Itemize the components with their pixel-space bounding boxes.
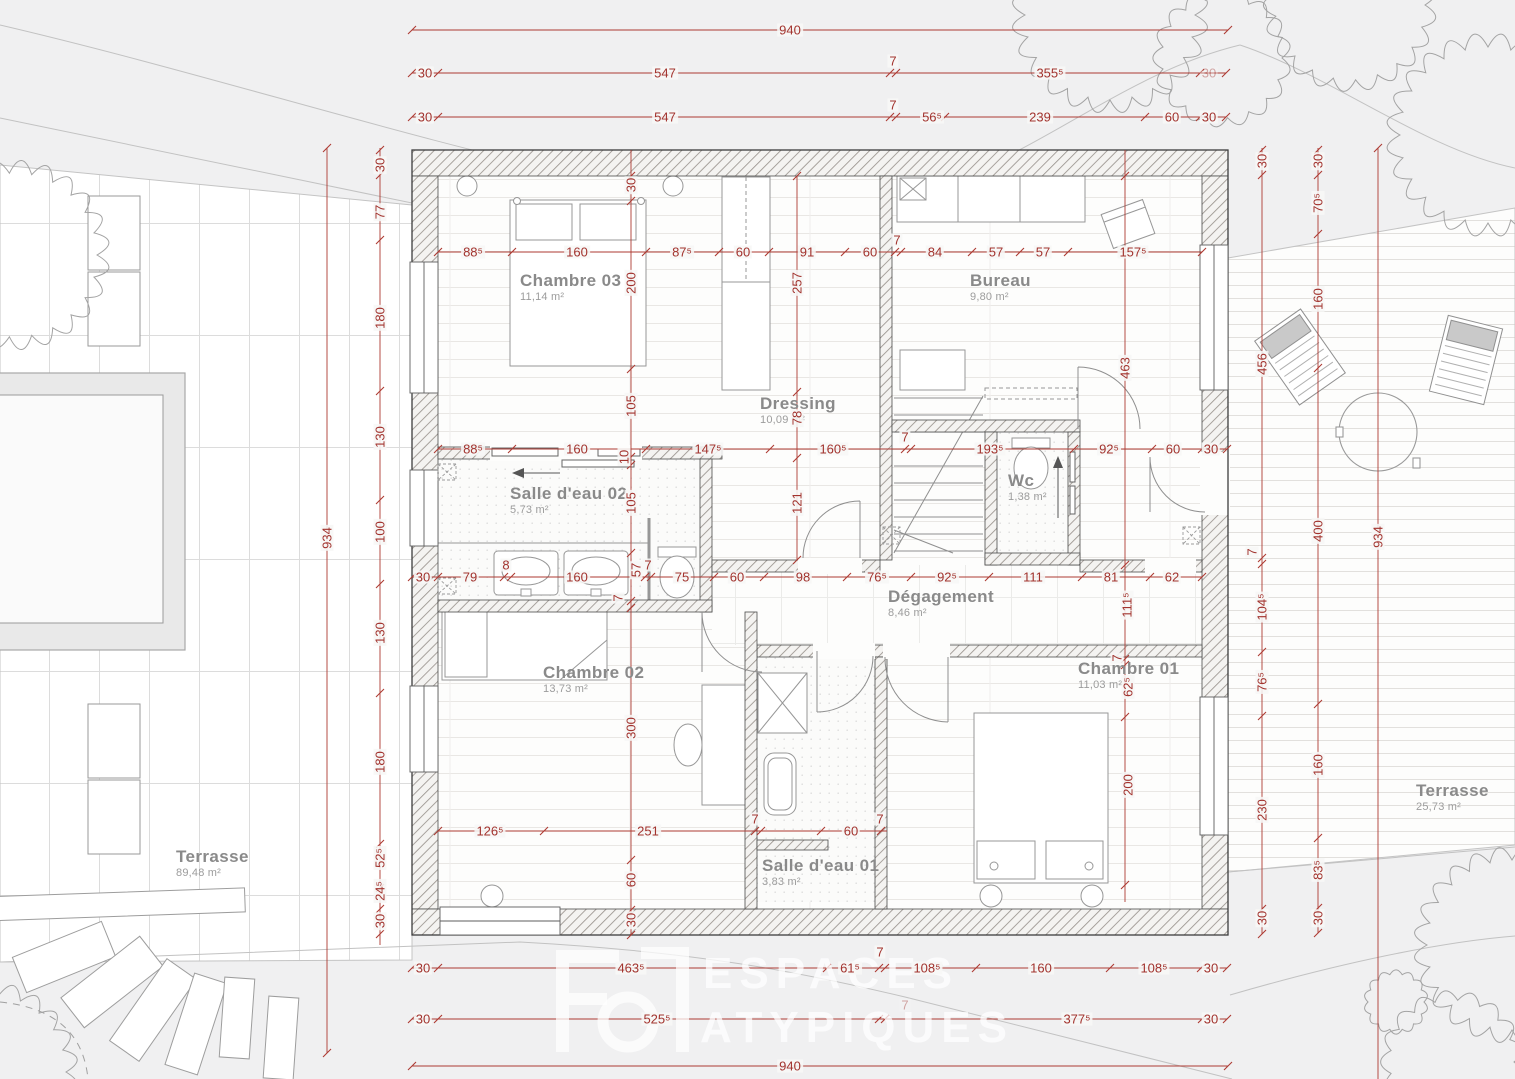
- bureau-closet: [897, 176, 1085, 222]
- left-terrace: [0, 165, 412, 962]
- room-area: 25,73 m²: [1416, 801, 1489, 813]
- dimension-label: 30: [625, 176, 638, 194]
- ceiling-light: [663, 176, 683, 196]
- dimension-label: 7: [874, 813, 885, 826]
- dimension-label: 88⁵: [461, 443, 485, 456]
- dimension-label: 91: [798, 246, 816, 259]
- dimension-label: 62⁵: [1122, 675, 1135, 699]
- room-area: 13,73 m²: [543, 683, 644, 695]
- dimension-label: 160: [1312, 286, 1325, 312]
- ceiling-light: [457, 176, 477, 196]
- dimension-label: 121: [791, 490, 804, 516]
- dimension-label: 193⁵: [974, 443, 1005, 456]
- dimension-label: 30: [374, 912, 387, 930]
- dimension-label: 81: [1102, 571, 1120, 584]
- dimension-label: 30: [416, 67, 434, 80]
- dimension-label: 57: [987, 246, 1005, 259]
- dimension-label: 104⁵: [1256, 591, 1269, 622]
- dimension-label: 70⁵: [1312, 191, 1325, 215]
- floor-plan-page: Chambre 03 11,14 m² Dressing 10,09 m² Bu…: [0, 0, 1515, 1079]
- dimension-label: 400: [1312, 518, 1325, 544]
- room-area: 5,73 m²: [510, 504, 627, 516]
- dimension-label: 98: [794, 571, 812, 584]
- dimension-label: 377⁵: [1061, 1013, 1092, 1026]
- dimension-label: 160: [1028, 962, 1054, 975]
- dimension-label: 7: [1111, 652, 1124, 663]
- dimension-label: 257: [791, 270, 804, 296]
- dimension-label: 525⁵: [641, 1013, 672, 1026]
- room-area: 8,46 m²: [888, 607, 994, 619]
- dimension-label: 160: [564, 246, 590, 259]
- dimension-label: 30: [1202, 1013, 1220, 1026]
- dimension-label: 57: [630, 561, 643, 579]
- sliding-door-wc: [1070, 452, 1075, 482]
- dimension-label: 30: [1312, 909, 1325, 927]
- desk-chambre-02: [702, 685, 750, 805]
- dimension-label: 463: [1119, 355, 1132, 381]
- pool: [0, 373, 185, 650]
- dimension-label: 76⁵: [865, 571, 889, 584]
- dimension-label: 79: [461, 571, 479, 584]
- dimension-label: 934: [321, 525, 334, 551]
- room-label-chambre-02: Chambre 02 13,73 m²: [543, 664, 644, 695]
- dimension-label: 56⁵: [920, 111, 944, 124]
- dimension-label: 30: [1200, 111, 1218, 124]
- bed-chambre-01: [974, 713, 1108, 907]
- dimension-label: 7: [612, 592, 625, 603]
- dimension-label: 84: [926, 246, 944, 259]
- dimension-label: 78: [791, 409, 804, 427]
- dimension-label: 547: [652, 67, 678, 80]
- dimension-label: 30: [1200, 67, 1218, 80]
- dimension-label: 88⁵: [461, 246, 485, 259]
- dimension-label: 60: [728, 571, 746, 584]
- dimension-label: 126⁵: [474, 825, 505, 838]
- dimension-label: 7: [887, 99, 898, 112]
- dimension-label: 87⁵: [670, 246, 694, 259]
- dimension-label: 30: [414, 571, 432, 584]
- room-label-chambre-03: Chambre 03 11,14 m²: [520, 272, 621, 303]
- dimension-label: 7: [891, 234, 902, 247]
- dimension-label: 24⁵: [374, 879, 387, 903]
- dimension-label: 8: [500, 559, 511, 572]
- dimension-label: 7: [749, 813, 760, 826]
- room-name: Chambre 03: [520, 272, 621, 291]
- sliding-door-wc: [1070, 486, 1075, 514]
- dimension-label: 105: [625, 490, 638, 516]
- dimension-label: 105: [625, 393, 638, 419]
- dimension-label: 111: [1021, 571, 1045, 584]
- dimension-label: 111⁵: [1121, 590, 1134, 619]
- dimension-label: 251: [635, 825, 661, 838]
- floor-plan-drawing: [0, 0, 1515, 1079]
- dimension-label: 30: [414, 1013, 432, 1026]
- dimension-label: 60: [734, 246, 752, 259]
- dimension-label: 30: [414, 962, 432, 975]
- dimension-label: 60: [842, 825, 860, 838]
- dimension-label: 30: [1312, 152, 1325, 170]
- dimension-label: 7: [642, 559, 653, 572]
- dimension-label: 130: [374, 424, 387, 450]
- chair-chambre-02: [674, 724, 702, 766]
- room-name: Chambre 02: [543, 664, 644, 683]
- room-label-wc: Wc 1,38 m²: [1008, 472, 1047, 503]
- dimension-label: 76⁵: [1256, 670, 1269, 694]
- dimension-label: 547: [652, 111, 678, 124]
- terrace-label-left: Terrasse 89,48 m²: [176, 848, 249, 879]
- dimension-label: 60: [1163, 111, 1181, 124]
- dimension-label: 30: [1202, 443, 1220, 456]
- dimension-label: 7: [887, 55, 898, 68]
- watermark-text-line2: ATYPIQUES: [700, 1006, 1014, 1050]
- dimension-label: 77: [374, 203, 387, 221]
- dimension-label: 160: [1312, 752, 1325, 778]
- dimension-label: 200: [625, 270, 638, 296]
- room-area: 11,14 m²: [520, 291, 621, 303]
- dimension-label: 230: [1256, 797, 1269, 823]
- room-name: Salle d'eau 01: [762, 857, 879, 876]
- dimension-label: 940: [777, 24, 803, 37]
- room-label-degagement: Dégagement 8,46 m²: [888, 588, 994, 619]
- dimension-label: 7: [899, 999, 910, 1012]
- dimension-label: 30: [416, 111, 434, 124]
- room-label-salle-d-eau-01: Salle d'eau 01 3,83 m²: [762, 857, 879, 888]
- dimension-label: 7: [874, 946, 885, 959]
- room-area: 1,38 m²: [1008, 491, 1047, 503]
- dimension-label: 83⁵: [1312, 858, 1325, 882]
- dimension-label: 60: [861, 246, 879, 259]
- dimension-label: 456: [1256, 351, 1269, 377]
- dimension-label: 62: [1163, 571, 1181, 584]
- dimension-label: 934: [1372, 524, 1385, 550]
- room-label-bureau: Bureau 9,80 m²: [970, 272, 1031, 303]
- dimension-label: 108⁵: [1138, 962, 1169, 975]
- dimension-label: 60: [1164, 443, 1182, 456]
- dimension-label: 940: [777, 1060, 803, 1073]
- room-name: Terrasse: [1416, 782, 1489, 801]
- room-area: 89,48 m²: [176, 867, 249, 879]
- dimension-label: 92⁵: [1097, 443, 1121, 456]
- dimension-label: 157⁵: [1117, 246, 1148, 259]
- dimension-label: 7: [1246, 546, 1259, 557]
- dimension-label: 130: [374, 620, 387, 646]
- room-name: Dégagement: [888, 588, 994, 607]
- bureau-desk: [900, 350, 965, 390]
- dimension-label: 52⁵: [374, 846, 387, 870]
- room-name: Wc: [1008, 472, 1047, 491]
- dimension-label: 147⁵: [692, 443, 723, 456]
- room-name: Bureau: [970, 272, 1031, 291]
- dimension-label: 180: [374, 749, 387, 775]
- dimension-label: 108⁵: [911, 962, 942, 975]
- room-area: 9,80 m²: [970, 291, 1031, 303]
- dimension-label: 57: [1034, 246, 1052, 259]
- room-label-salle-d-eau-02: Salle d'eau 02 5,73 m²: [510, 485, 627, 516]
- room-name: Salle d'eau 02: [510, 485, 627, 504]
- room-name: Terrasse: [176, 848, 249, 867]
- dimension-label: 160⁵: [817, 443, 848, 456]
- dimension-label: 180: [374, 305, 387, 331]
- dimension-label: 60: [625, 871, 638, 889]
- building: [410, 150, 1230, 935]
- dimension-label: 30: [374, 156, 387, 174]
- dimension-label: 239: [1027, 111, 1053, 124]
- dimension-label: 30: [1256, 909, 1269, 927]
- dimension-label: 30: [1202, 962, 1220, 975]
- dimension-label: 355⁵: [1034, 67, 1065, 80]
- dimension-label: 61⁵: [838, 962, 862, 975]
- dimension-label: 160: [564, 571, 590, 584]
- room-area: 3,83 m²: [762, 876, 879, 888]
- dimension-label: 160: [564, 443, 590, 456]
- dimension-label: 200: [1122, 772, 1135, 798]
- dressing-cabinet: [722, 177, 770, 390]
- dimension-label: 30: [1256, 152, 1269, 170]
- dimension-label: 7: [899, 431, 910, 444]
- terrace-label-right: Terrasse 25,73 m²: [1416, 782, 1489, 813]
- ceiling-light: [481, 885, 503, 907]
- dimension-label: 92⁵: [935, 571, 959, 584]
- dimension-label: 10: [618, 448, 631, 466]
- dimension-label: 75: [673, 571, 691, 584]
- dimension-label: 300: [625, 715, 638, 741]
- dimension-label: 30: [625, 911, 638, 929]
- dimension-label: 463⁵: [615, 962, 646, 975]
- dimension-label: 100: [374, 519, 387, 545]
